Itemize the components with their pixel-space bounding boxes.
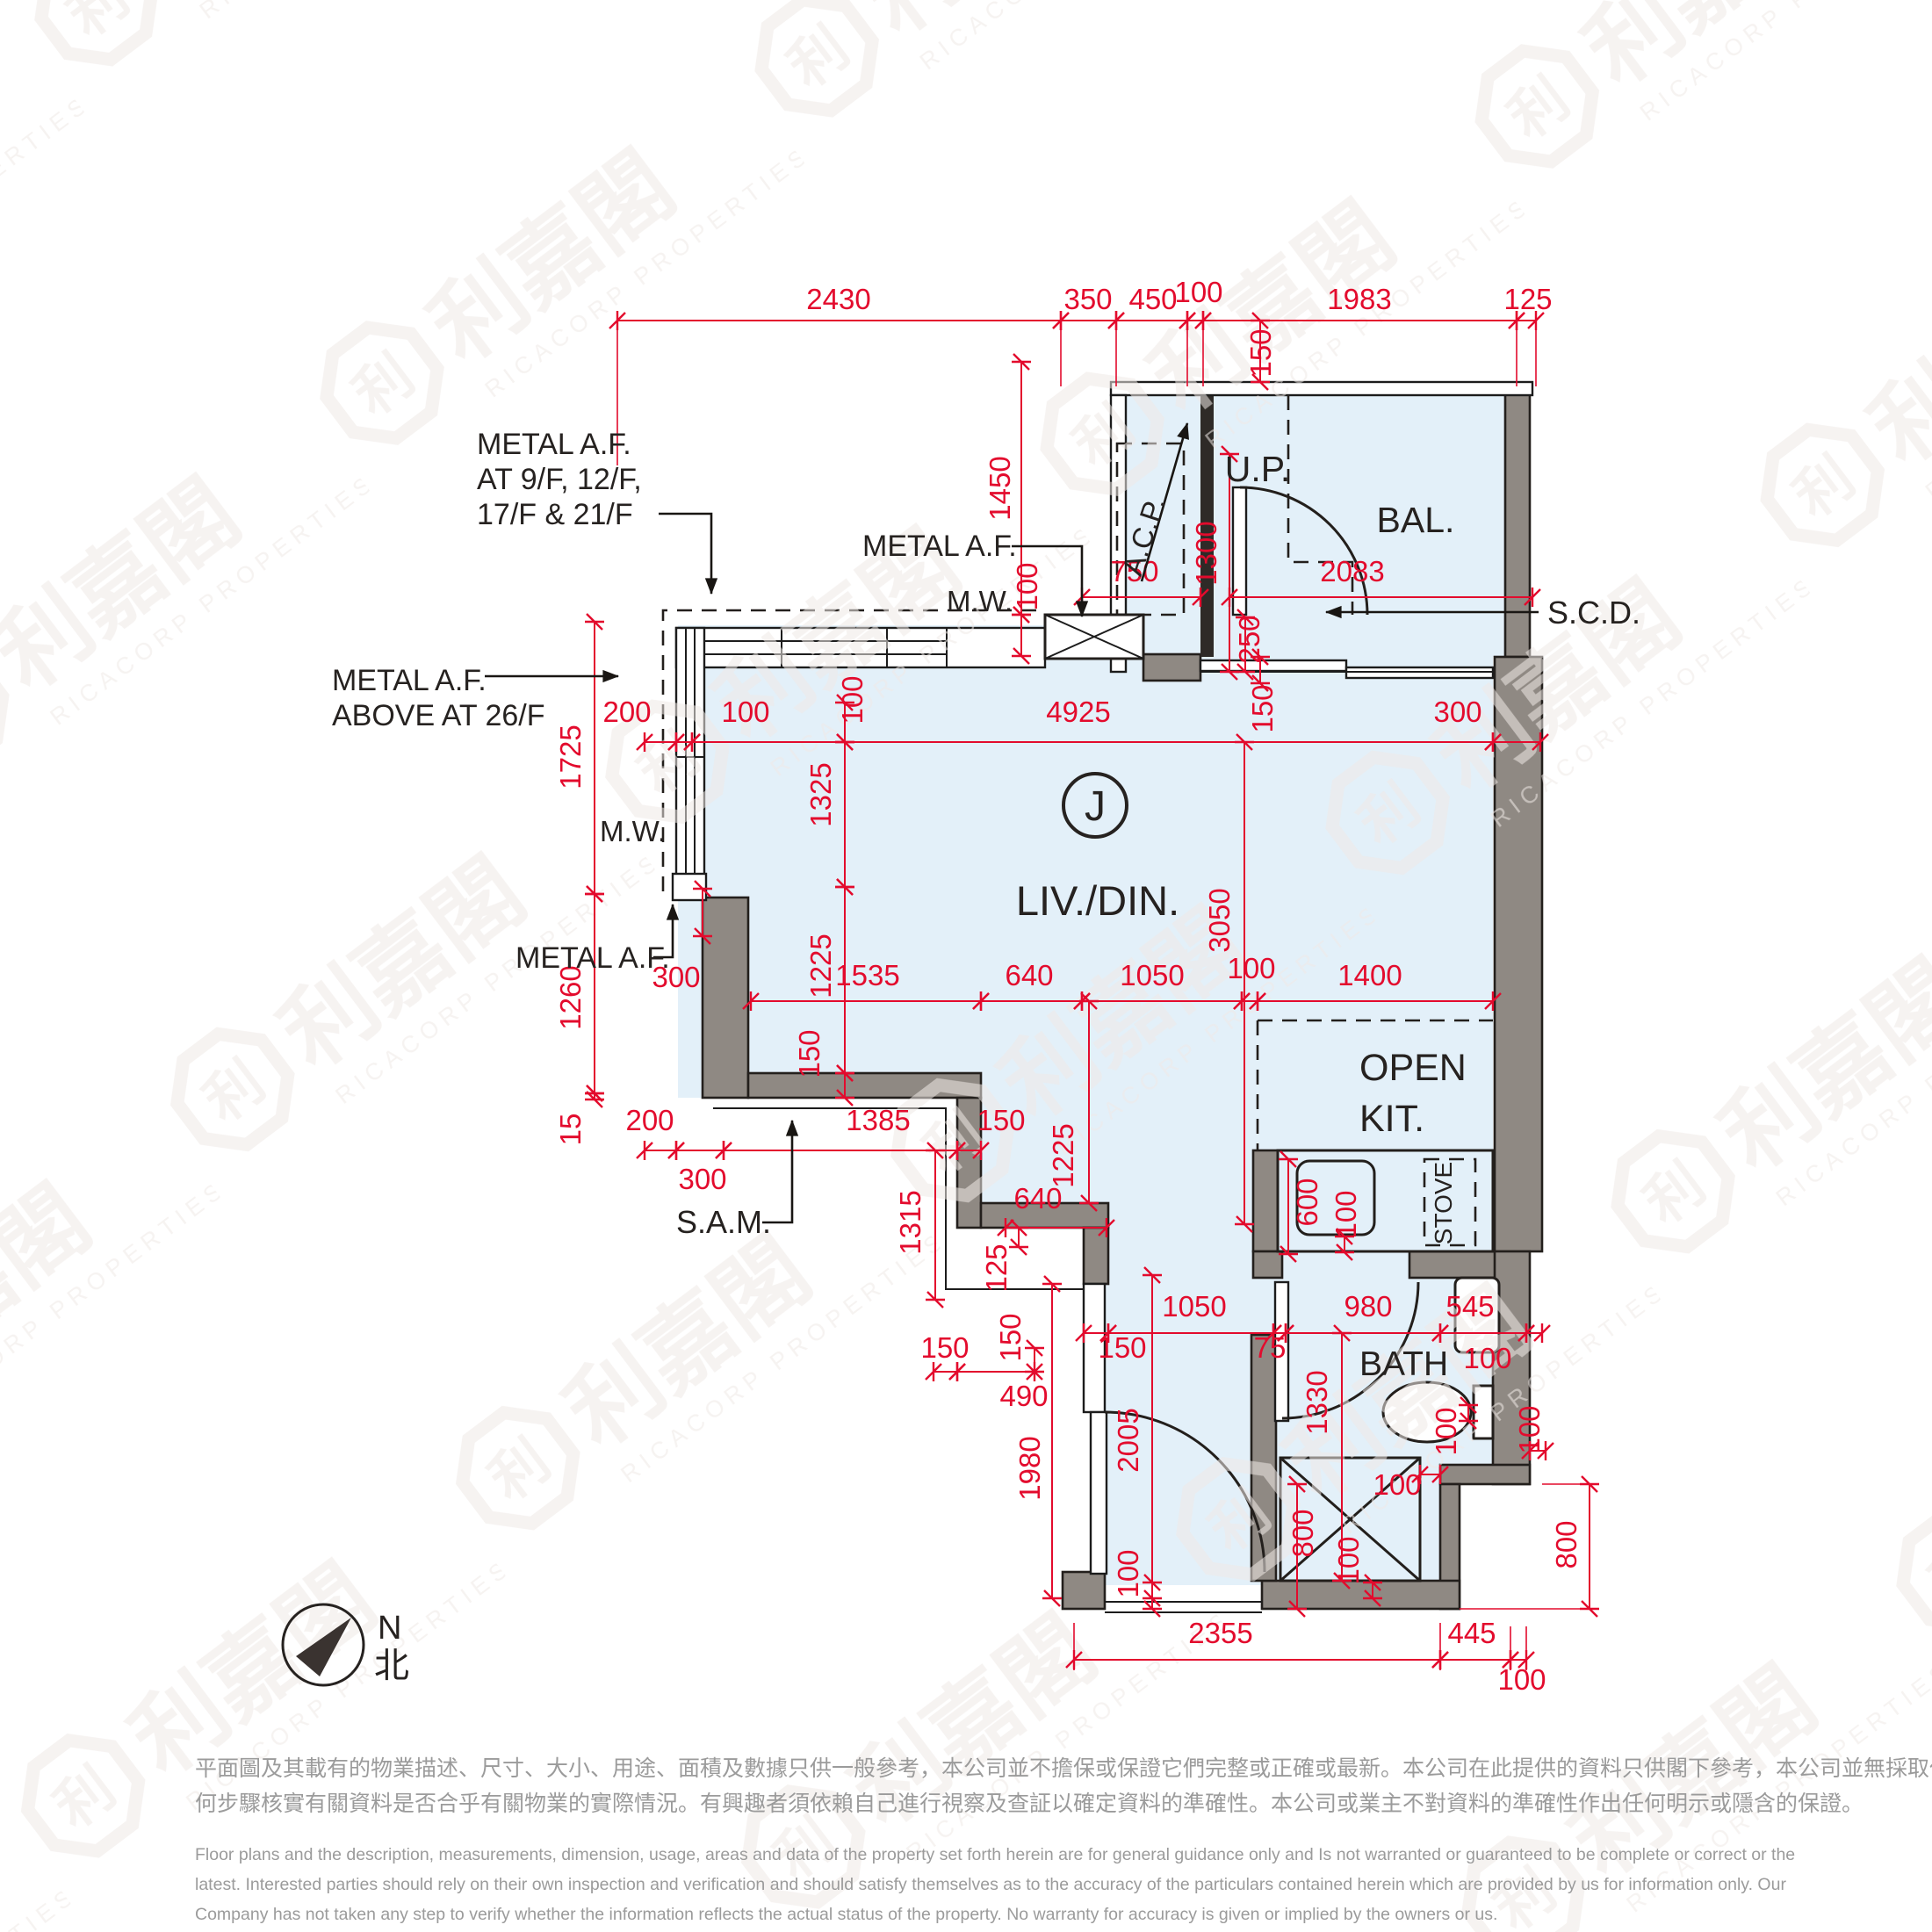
dimension-label: 125 [980,1244,1013,1292]
plan-label: BATH [1359,1345,1448,1383]
dimension-label: 2005 [1112,1408,1144,1472]
dimension-label: 1725 [554,724,587,789]
dimension-label: 1385 [846,1104,910,1136]
plan-label: ABOVE AT 26/F [332,699,545,732]
dimension-label: 200 [625,1104,674,1136]
dimension-label: 800 [1550,1520,1582,1568]
plan-label: STOVE [1430,1162,1457,1244]
dimension-label: 150 [920,1331,969,1364]
plan-label: OPEN [1359,1047,1467,1089]
dimension-label: 150 [1098,1331,1146,1364]
dimension-label: 490 [999,1380,1048,1412]
plan-label: METAL A.F. [515,941,670,975]
plan-label: M.W. [947,585,1013,617]
dimension-label: 150 [1246,684,1279,732]
dimension-label: 1300 [1190,521,1222,585]
dimension-label: 1400 [1337,959,1402,991]
plan-label: M.W. [600,815,666,847]
dimension-label: 1980 [1013,1436,1046,1500]
disclaimer-cn-line: 何步驟核實有關資料是否合乎有關物業的實際情況。有興趣者須依賴自己進行視察及查証以… [195,1791,1864,1816]
disclaimer-en-line: latest. Interested parties should rely o… [195,1875,1786,1894]
dimension-label: 1330 [1301,1370,1333,1434]
compass-n: N [378,1610,401,1647]
dimension-label: 100 [1227,952,1275,984]
dimension-label: 350 [1063,283,1112,315]
dimension-label: 1315 [894,1190,926,1254]
dimension-label: 445 [1447,1617,1496,1649]
dimension-label: 2430 [806,283,870,315]
disclaimer-cn-line: 平面圖及其載有的物業描述、尺寸、大小、用途、面積及數據只供一般參考，本公司並不擔… [195,1756,1932,1781]
dimension-label: 75 [1254,1331,1287,1364]
plan-label: BAL. [1377,500,1455,540]
dimension-label: 100 [1497,1663,1546,1696]
dimension-label: 250 [1233,615,1265,663]
dimension-label: 1225 [1047,1123,1079,1187]
dimension-label: 150 [793,1029,825,1078]
plan-label: METAL A.F. [332,664,487,697]
dimension-label: 1050 [1120,959,1184,991]
dimension-label: 300 [1433,696,1481,728]
dimension-label: 125 [1503,283,1552,315]
plan-label: 17/F & 21/F [477,498,633,531]
compass-north-cn: 北 [374,1647,409,1685]
dimension-label: 100 [836,675,869,724]
dimension-label: 300 [678,1163,726,1195]
dimension-label: 1225 [804,934,837,998]
plan-label: KIT. [1359,1098,1424,1140]
dimension-label: 1450 [984,456,1016,520]
disclaimer-en-line: Floor plans and the description, measure… [195,1845,1795,1864]
dimension-label: 1535 [835,959,899,991]
dimension-label: 150 [994,1313,1027,1361]
disclaimer-en-line: Company has not taken any step to verify… [195,1905,1497,1924]
dimension-label: 640 [1013,1182,1062,1215]
floor-plan-sheet: 利 利嘉閣 RICACORP PROPERTIES [0,0,1932,1932]
dimension-label: 545 [1445,1290,1494,1323]
plan-label: S.C.D. [1547,595,1640,631]
dimension-label: 1983 [1327,283,1391,315]
plan-label: S.A.M. [676,1204,771,1240]
dimension-label: 100 [1373,1468,1421,1501]
dimension-label: 100 [1011,562,1043,610]
dimension-label: 2083 [1320,555,1384,588]
dimension-label: 150 [1244,328,1277,377]
dimension-label: 1260 [554,965,587,1029]
dimension-label: 100 [1430,1407,1462,1455]
watermark-layer [0,0,1932,1932]
dimension-label: 15 [554,1114,587,1146]
plan-label: METAL A.F. [477,428,631,461]
unit-badge-letter: J [1085,783,1106,830]
dimension-label: 800 [1287,1509,1319,1557]
dimension-label: 100 [1174,276,1222,308]
dimension-label: 2355 [1188,1617,1252,1649]
plan-label: U.P. [1225,449,1290,489]
dimension-label: 100 [1463,1342,1511,1374]
dimension-label: 100 [721,696,769,728]
dimension-label: 600 [1291,1178,1323,1226]
dimension-label: 100 [1330,1190,1362,1238]
dimension-label: 980 [1344,1290,1392,1323]
dimension-label: 1325 [804,762,837,826]
dimension-label: 640 [1005,959,1053,991]
plan-label: LIV./DIN. [1016,877,1179,924]
plan-label: AT 9/F, 12/F, [477,463,642,496]
dimension-label: 200 [602,696,651,728]
dimension-label: 100 [1332,1536,1365,1584]
plan-label: METAL A.F. [862,530,1017,563]
dimension-label: 450 [1128,283,1177,315]
dimension-label: 100 [1112,1549,1144,1597]
dimension-label: 3050 [1203,888,1236,952]
dimension-label: 150 [977,1104,1025,1136]
dimension-label: 100 [1513,1405,1546,1453]
dimension-label: 1050 [1162,1290,1226,1323]
dimension-label: 4925 [1046,696,1110,728]
floor-plan-drawing: 利 利嘉閣 RICACORP PROPERTIES [0,0,1932,1932]
